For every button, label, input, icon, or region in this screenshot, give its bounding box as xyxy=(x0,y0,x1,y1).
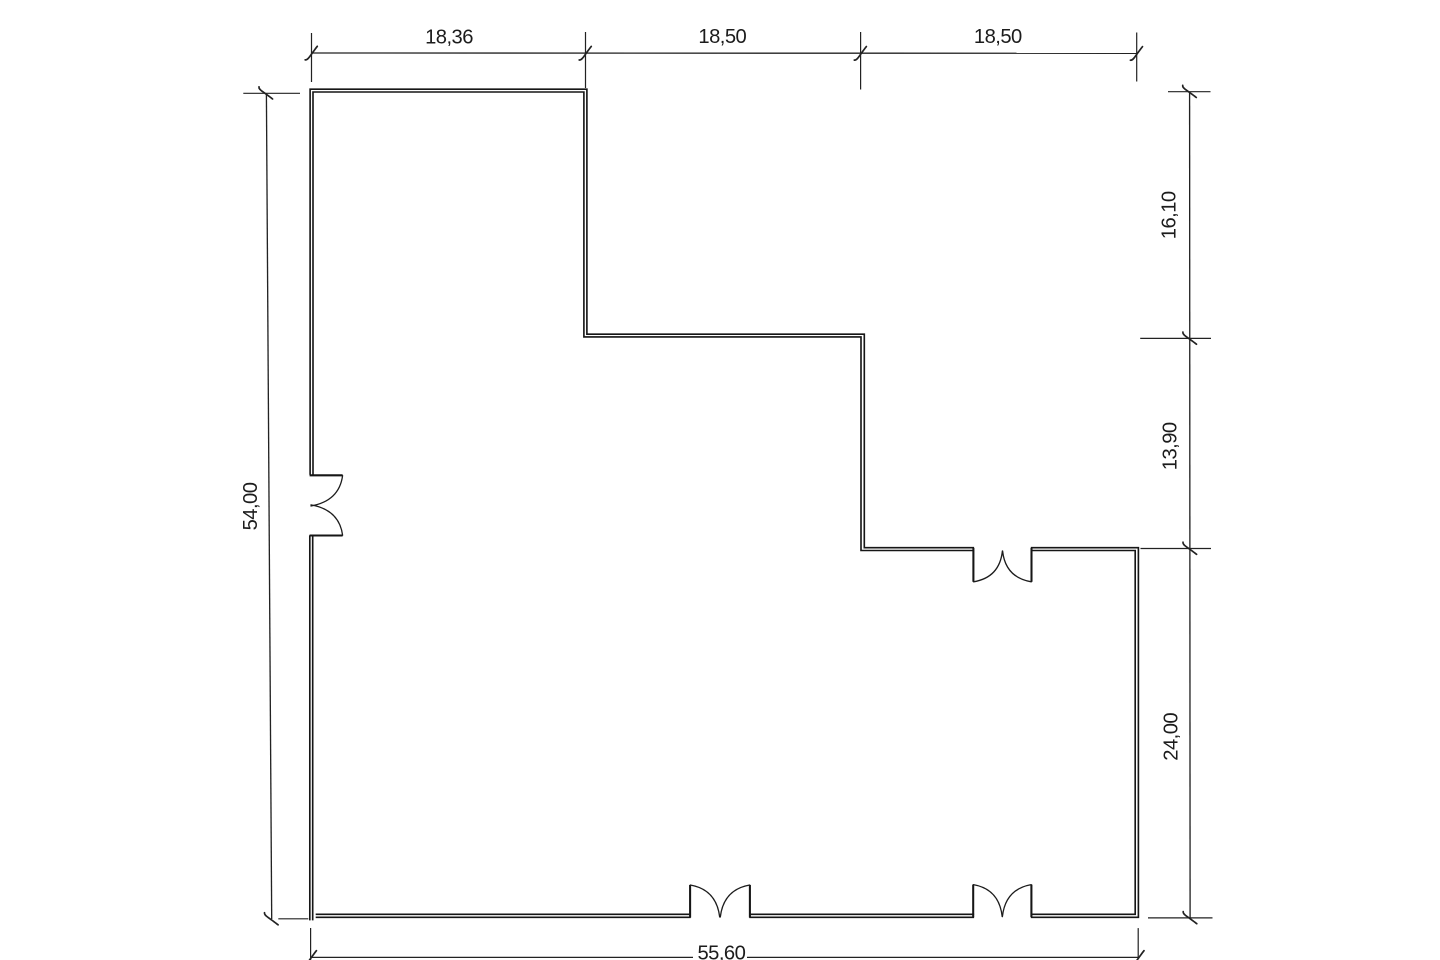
svg-text:55,60: 55,60 xyxy=(698,942,746,960)
svg-text:18,50: 18,50 xyxy=(974,26,1022,48)
svg-text:24,00: 24,00 xyxy=(1161,713,1183,761)
svg-text:16,10: 16,10 xyxy=(1159,191,1181,239)
svg-text:13,90: 13,90 xyxy=(1159,422,1181,470)
svg-text:18,36: 18,36 xyxy=(425,27,473,49)
svg-text:54,00: 54,00 xyxy=(240,482,262,530)
svg-text:18,50: 18,50 xyxy=(698,26,746,48)
